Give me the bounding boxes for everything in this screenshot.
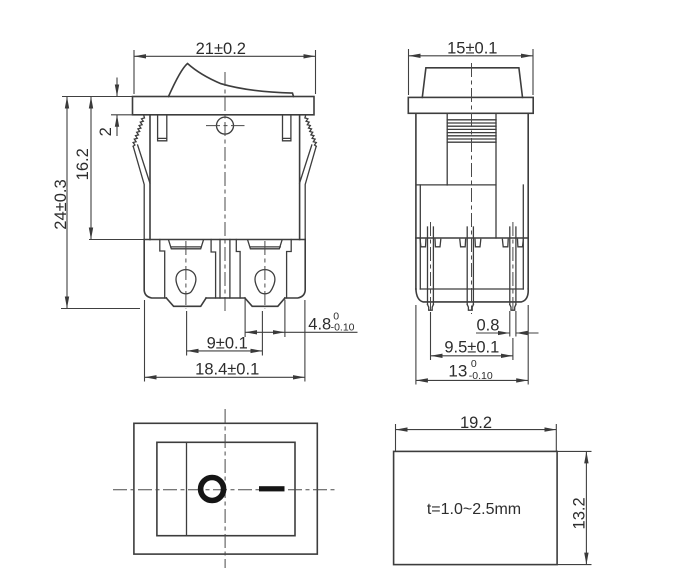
svg-text:0.8: 0.8 <box>477 317 500 335</box>
svg-text:-0.10: -0.10 <box>331 321 355 333</box>
svg-text:2: 2 <box>97 127 115 136</box>
svg-text:13.2: 13.2 <box>570 497 588 529</box>
svg-text:9±0.1: 9±0.1 <box>207 335 248 353</box>
svg-text:18.4±0.1: 18.4±0.1 <box>195 361 259 379</box>
svg-text:21±0.2: 21±0.2 <box>196 40 246 58</box>
svg-text:9.5±0.1: 9.5±0.1 <box>444 339 499 357</box>
svg-text:-0.10: -0.10 <box>469 370 493 382</box>
svg-text:24±0.3: 24±0.3 <box>52 179 70 229</box>
svg-text:19.2: 19.2 <box>460 414 492 432</box>
svg-text:13: 13 <box>448 361 467 380</box>
svg-text:t=1.0~2.5mm: t=1.0~2.5mm <box>427 501 521 518</box>
svg-text:16.2: 16.2 <box>74 148 92 180</box>
svg-text:15±0.1: 15±0.1 <box>447 40 497 58</box>
svg-text:4.8: 4.8 <box>308 316 331 334</box>
svg-text:0: 0 <box>471 358 477 370</box>
